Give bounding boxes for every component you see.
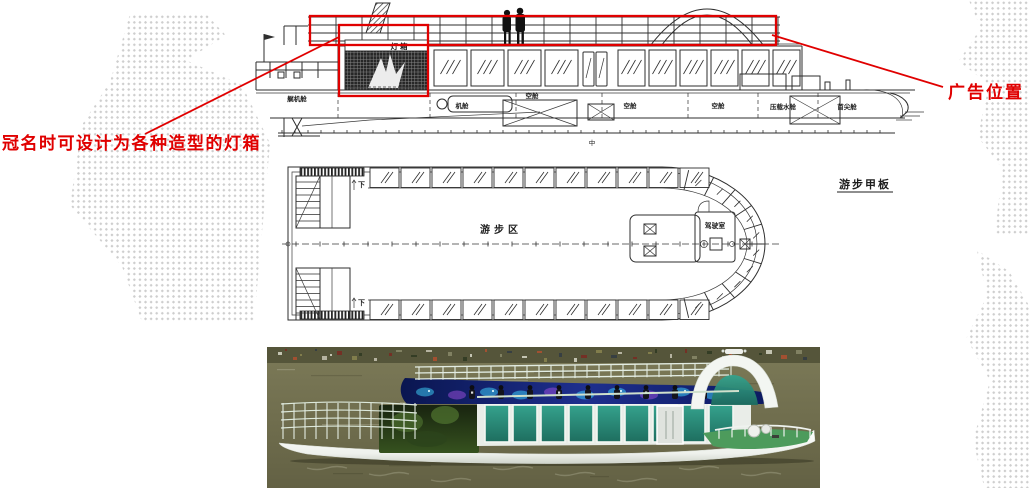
lightbox-label: 灯箱 [391, 41, 410, 51]
deck-windows-top [370, 168, 709, 188]
promenade-deck-label: 游步甲板 [837, 177, 893, 192]
name-lightbox: 灯箱 [345, 40, 428, 90]
stairs-down-label: 下 [358, 181, 365, 189]
tree-foliage [431, 406, 459, 424]
lightbox-callout-text: 冠名时可设计为各种造型的灯箱 [2, 129, 261, 154]
cabin-door [657, 406, 683, 444]
compartment-label: 空舱 [624, 101, 638, 110]
compartment-label: 艉机舱 [287, 94, 307, 103]
stern-structures [256, 34, 338, 90]
cabin-door [583, 52, 607, 86]
elevation-drawing: 灯箱 [250, 0, 930, 152]
deck-plan-drawing: 下 下 驾驶室 [280, 158, 910, 338]
tree-foliage [407, 431, 447, 447]
wheelhouse: 驾驶室 [630, 201, 735, 262]
stairs-down-label: 下 [358, 299, 365, 307]
compartment-label: 压载水舱 [770, 102, 797, 111]
exhaust-stack [366, 3, 390, 33]
boat-photo [267, 347, 820, 488]
antenna [744, 350, 747, 353]
mast-platform [725, 349, 743, 354]
antenna [722, 350, 725, 353]
svg-text:游步甲板: 游步甲板 [839, 177, 891, 191]
compartment-label: 机舱 [456, 101, 470, 110]
world-map-dots-right-bottom [935, 250, 1030, 488]
compartment-label: 首尖舱 [837, 102, 857, 111]
deck-wall-hatch-top [300, 168, 364, 176]
baseline-mark: 中 [589, 138, 596, 147]
deck-windows-bottom [370, 300, 709, 320]
deck-outline [288, 167, 765, 320]
promenade-area-label: 游步区 [480, 223, 522, 236]
stairs-top: 下 [296, 176, 365, 228]
compartment-label: 空舱 [712, 101, 726, 110]
world-map-dots-right-top [945, 0, 1030, 235]
world-map-dots-left [70, 14, 270, 322]
wheelhouse-label: 驾驶室 [704, 221, 726, 230]
bow-arch [650, 9, 764, 46]
anchor-winch [762, 425, 771, 434]
anchor-winch [748, 425, 760, 437]
tree-foliage [391, 412, 423, 432]
deck-fitting [772, 435, 779, 438]
compartment-label: 空舱 [526, 91, 540, 100]
slide-canvas: 灯箱 [0, 0, 1030, 488]
people-figures [503, 8, 526, 44]
ad-position-callout-text: 广告位置 [948, 78, 1024, 103]
